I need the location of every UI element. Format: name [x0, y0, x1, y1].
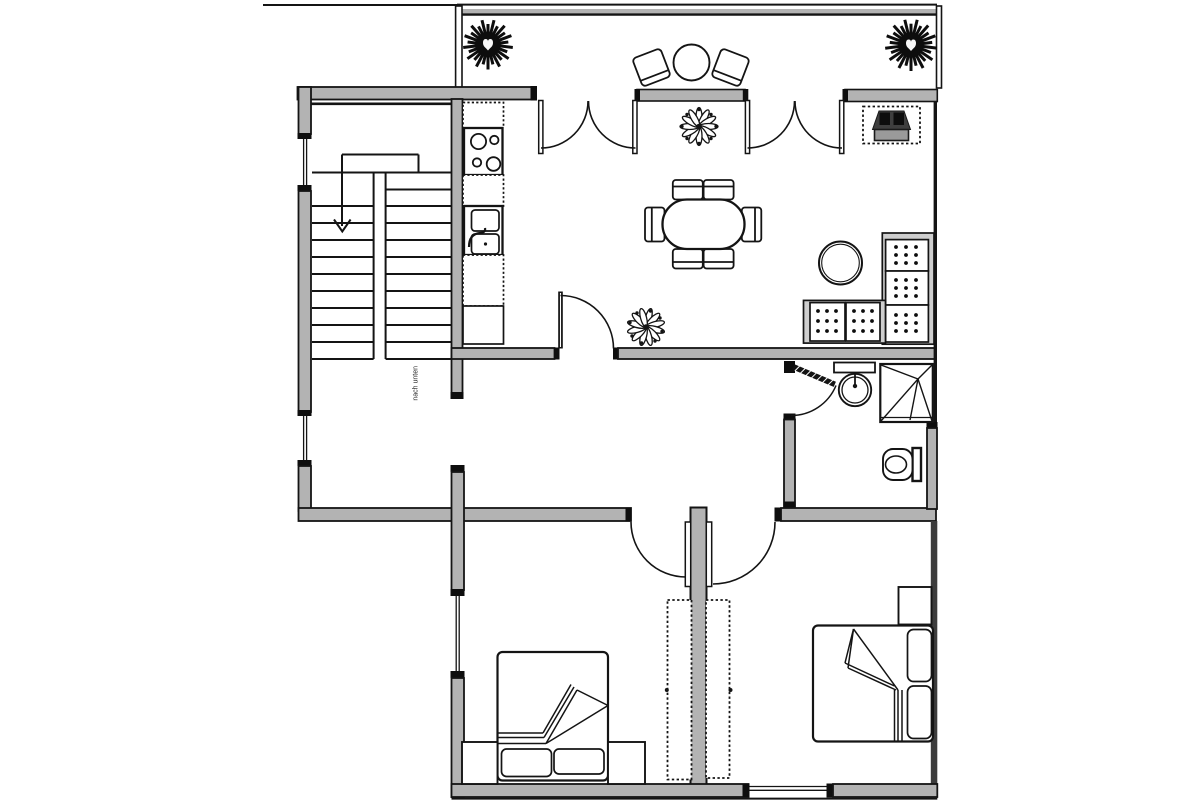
svg-text:nach unten: nach unten: [413, 366, 420, 401]
